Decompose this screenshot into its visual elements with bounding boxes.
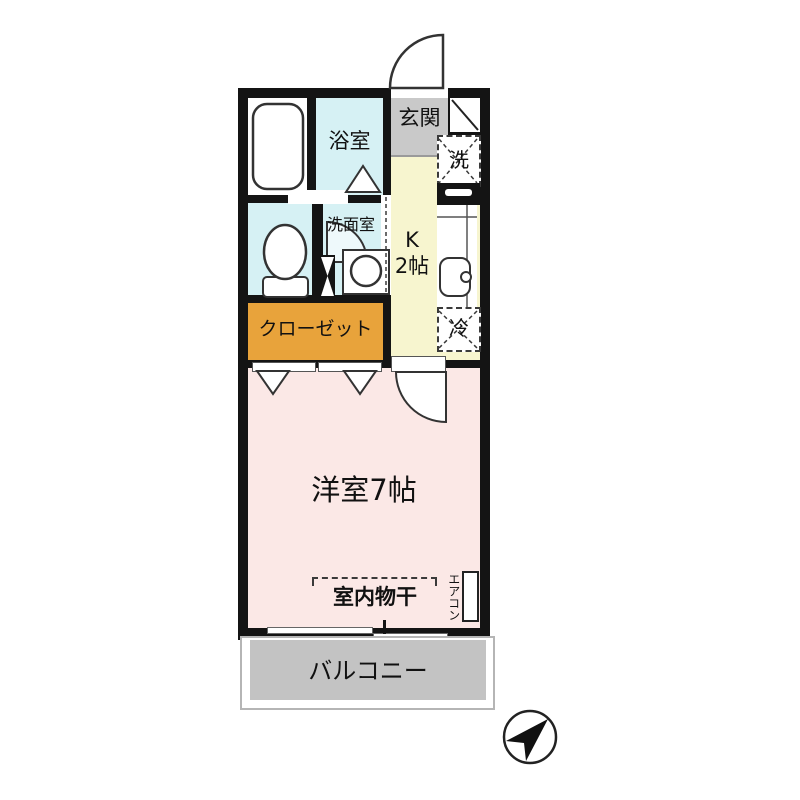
balcony-window-tick — [383, 620, 386, 634]
balcony-label: バルコニー — [250, 658, 486, 686]
entrance-door-opening — [391, 86, 448, 98]
bathtub-area — [248, 98, 307, 195]
indoor-drying-label: 室内物干 — [300, 585, 450, 609]
entrance-label: 玄関 — [391, 106, 448, 130]
kitchen-door-leaf — [391, 356, 446, 372]
bathroom-label: 浴室 — [316, 129, 383, 153]
washer-space-label: 洗 — [437, 149, 481, 172]
closet-door-panel-right — [318, 362, 382, 372]
stove-slit — [445, 189, 472, 196]
balcony-window-left — [267, 627, 373, 634]
room-toilet — [248, 203, 312, 295]
shoe-cabinet — [450, 98, 480, 132]
western-room-label: 洋室7帖 — [248, 474, 480, 507]
entrance-door-swing — [390, 35, 443, 88]
bathroom-door-threshold — [288, 190, 348, 204]
kitchen-label-k: K — [389, 228, 435, 252]
aircon-label: エアコン — [446, 565, 460, 629]
washroom-label: 洗面室 — [316, 216, 386, 234]
north-arrow-icon — [504, 711, 556, 763]
kitchen-label-size: 2帖 — [389, 254, 435, 278]
closet-door-panel-left — [252, 362, 316, 372]
fridge-space-label: 冷 — [437, 317, 481, 340]
closet-label: クローゼット — [248, 319, 383, 341]
kitchen-counter — [437, 205, 477, 307]
floorplan-canvas: 浴室 洗面室 玄関 洗 K 2帖 冷 クローゼット 洋室7帖 室内物干 エアコン… — [0, 0, 800, 800]
aircon-unit — [462, 571, 479, 622]
